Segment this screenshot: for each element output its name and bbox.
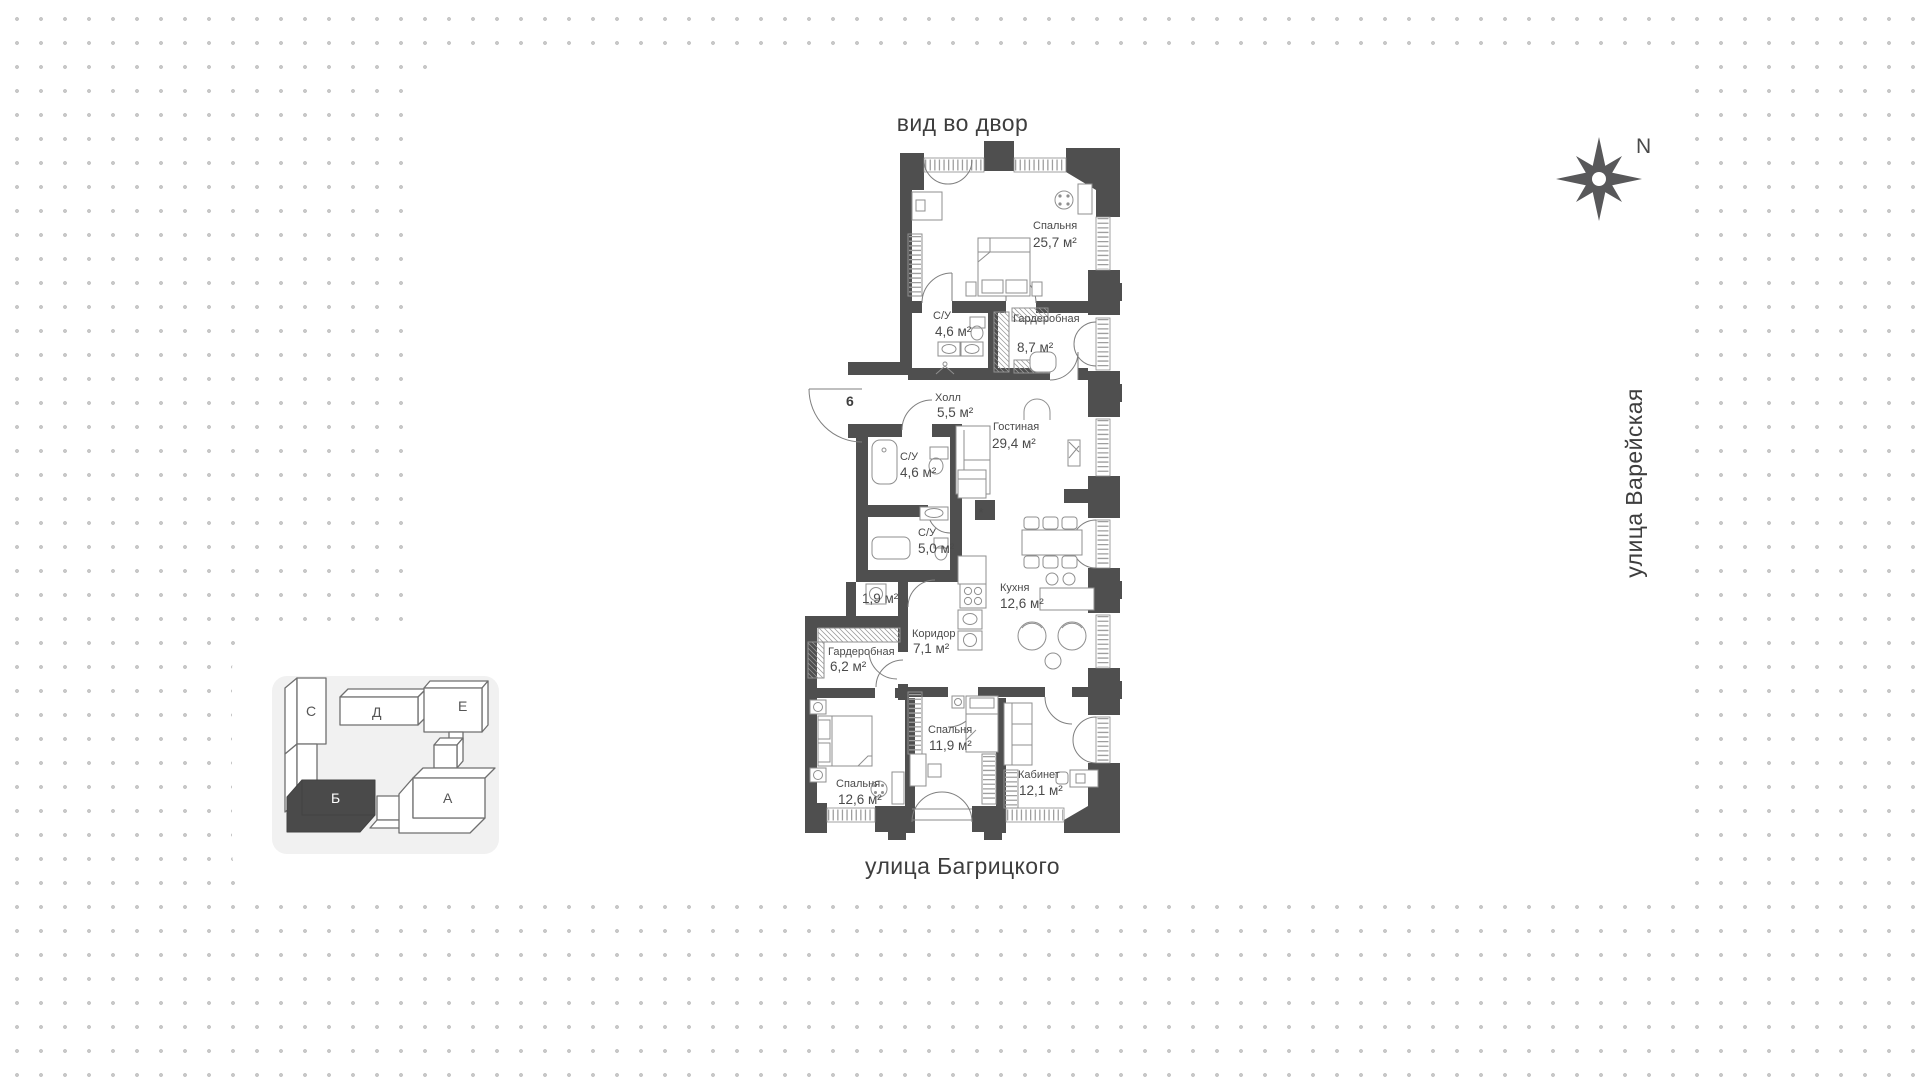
room-area-bedroom-126: 12,6 м²: [838, 792, 882, 807]
room-area-bedroom-top: 25,7 м²: [1033, 235, 1077, 250]
floor-plan: *: [790, 135, 1130, 845]
building-key-label-a: А: [443, 790, 453, 806]
compass-star-icon: [1556, 137, 1642, 221]
building-key-label-b: Б: [331, 790, 340, 806]
room-area-bedroom-119: 11,9 м²: [929, 738, 972, 753]
courtyard-view-label: вид во двор: [860, 110, 1065, 137]
room-label-wardrobe-87: Гардеробная: [1013, 313, 1080, 325]
room-label-bedroom-126: Спальня: [836, 778, 880, 790]
room-label-wc-50: С/У: [918, 527, 937, 539]
compass-north-label: N: [1636, 135, 1651, 158]
street-label-vareyskaya: улица Варейская: [1621, 383, 1647, 583]
building-key-diagram: С Д Е Б А: [260, 660, 515, 865]
room-area-office: 12,1 м²: [1019, 783, 1063, 798]
room-label-wardrobe-62: Гардеробная: [828, 646, 895, 658]
room-label-wc-mid: С/У: [900, 451, 919, 463]
room-label-hall: Холл: [935, 392, 961, 404]
building-key-label-e: Е: [458, 698, 467, 714]
building-key-section-d[interactable]: Д: [340, 689, 426, 725]
room-label-office: Кабинет: [1018, 769, 1060, 781]
svg-text:*: *: [978, 505, 983, 520]
room-area-wc-50: 5,0 м²: [918, 541, 955, 556]
building-key-label-d: Д: [372, 704, 382, 720]
street-label-bagritskogo: улица Багрицкого: [860, 853, 1065, 880]
room-area-living: 29,4 м²: [992, 436, 1036, 451]
room-label-living: Гостиная: [993, 421, 1039, 433]
room-area-corridor: 7,1 м²: [913, 641, 950, 656]
room-label-corridor: Коридор: [912, 628, 955, 640]
room-label-kitchen: Кухня: [1000, 582, 1029, 594]
room-area-wc-top: 4,6 м²: [935, 324, 972, 339]
building-key-label-c: С: [306, 703, 316, 719]
room-area-wardrobe-87: 8,7 м²: [1017, 340, 1054, 355]
room-label-wc-top: С/У: [933, 310, 952, 322]
room-area-wardrobe-62: 6,2 м²: [830, 659, 867, 674]
room-label-bedroom-119: Спальня: [928, 724, 972, 736]
entrance-number: 6: [846, 393, 854, 409]
compass-rose: N: [1540, 115, 1680, 245]
room-label-bedroom-top: Спальня: [1033, 220, 1077, 232]
room-area-wc-mid: 4,6 м²: [900, 465, 937, 480]
room-area-hall: 5,5 м²: [937, 405, 974, 420]
room-area-19: 1,9 м²: [862, 591, 899, 606]
room-area-kitchen: 12,6 м²: [1000, 596, 1044, 611]
building-key-section-b-selected[interactable]: Б: [287, 780, 375, 832]
